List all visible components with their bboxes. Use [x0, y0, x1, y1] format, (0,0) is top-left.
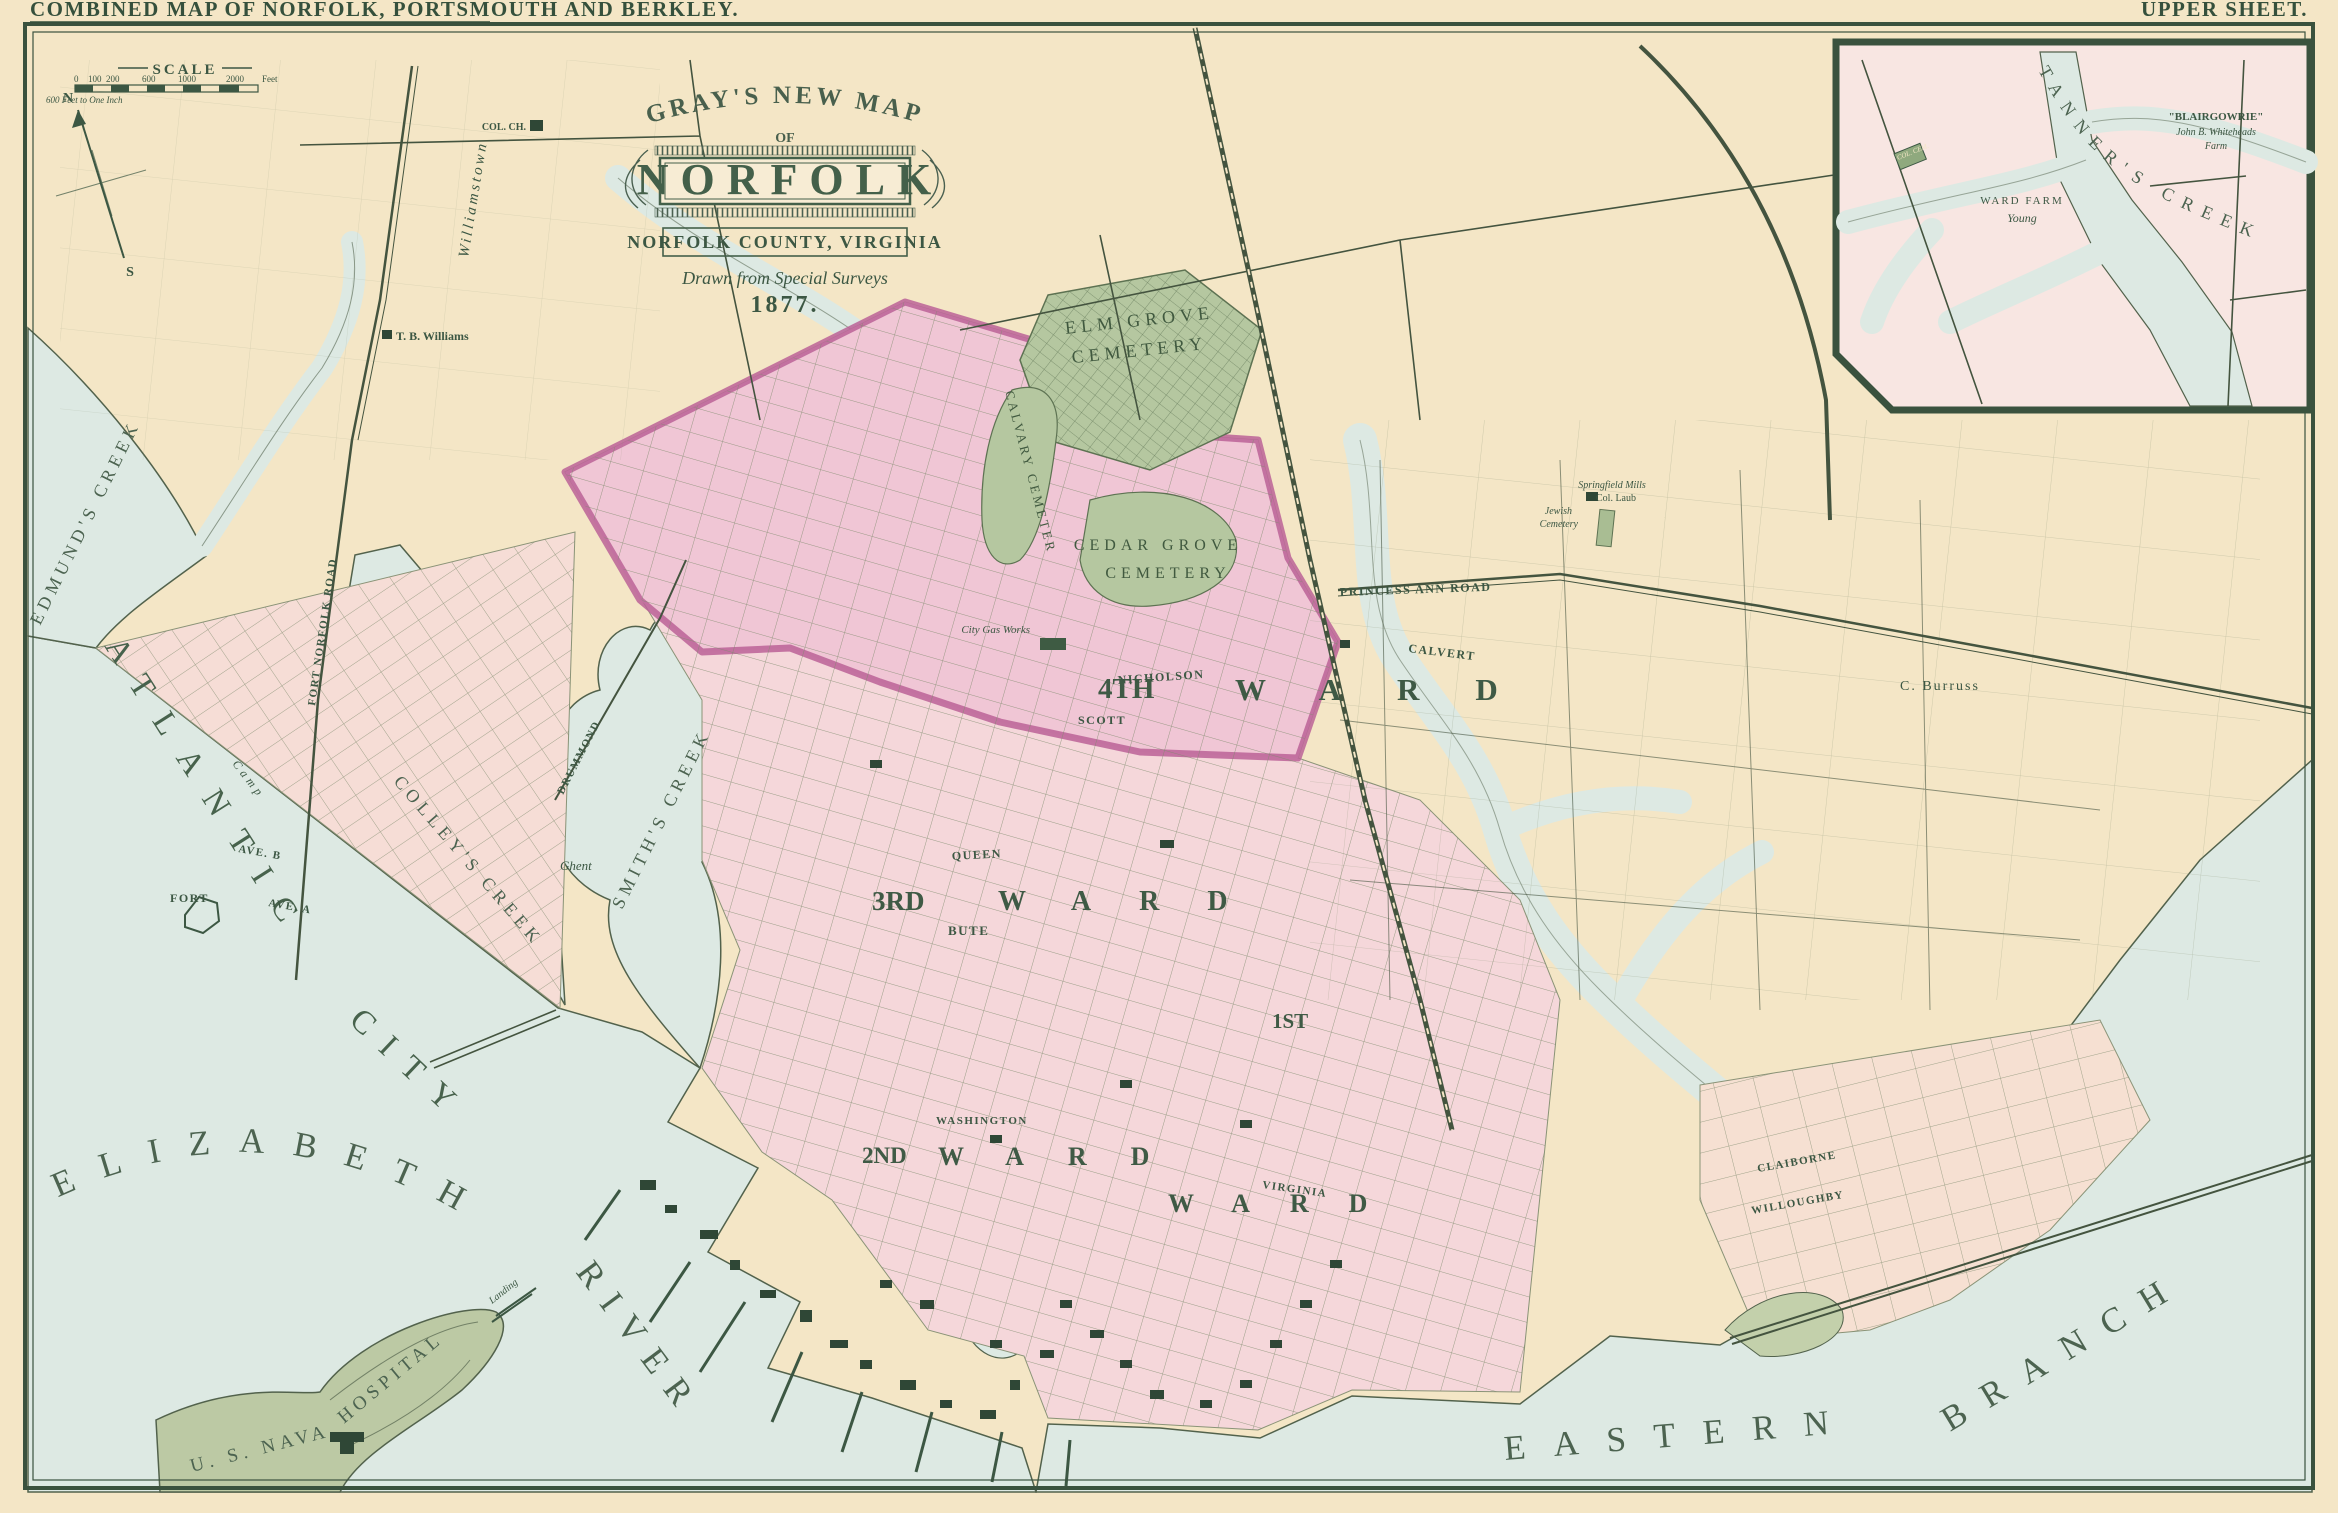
- title-drawn: Drawn from Special Surveys: [681, 268, 888, 288]
- ward3-num: 3RD: [872, 886, 925, 916]
- title-bar-top: [655, 146, 915, 155]
- ward3-label: WARD: [998, 886, 1276, 917]
- ward4-label: WARD: [1235, 672, 1554, 707]
- washington-label: WASHINGTON: [936, 1115, 1028, 1127]
- map-canvas: ELIZABETH RIVER EASTERN BRANCH EDMUND'S …: [0, 0, 2338, 1513]
- bute-label: BUTE: [948, 923, 989, 938]
- title-city: NORFOLK: [637, 155, 943, 204]
- scale-tick-0: 0: [74, 74, 79, 84]
- inset-farm: Farm: [2204, 141, 2227, 152]
- compass-south: S: [126, 265, 134, 280]
- header-right: UPPER SHEET.: [2141, 0, 2308, 21]
- cedar-grove-label2: CEMETERY: [1105, 565, 1230, 582]
- title-bar-bottom: [655, 208, 915, 217]
- springfield-label: Springfield Mills: [1578, 480, 1646, 491]
- burruss-label: C. Burruss: [1900, 679, 1980, 694]
- ward2-num: 2ND: [862, 1143, 907, 1168]
- scale-unit: Feet: [262, 74, 278, 84]
- jewish-cem-label: Jewish: [1545, 506, 1572, 517]
- scale-tick-100: 100: [88, 74, 102, 84]
- ward1-num: 1ST: [1272, 1009, 1308, 1033]
- scale-note: 600 Feet to One Inch: [46, 95, 123, 105]
- fort-label: FORT: [170, 891, 209, 905]
- inset-blairgowrie: "BLAIRGOWRIE": [2169, 111, 2264, 123]
- title-county: NORFOLK COUNTY, VIRGINIA: [627, 232, 943, 252]
- jewish-cemetery-shape: [1596, 509, 1615, 546]
- ward2-label: WARD: [938, 1142, 1193, 1171]
- inset-young: Young: [2007, 211, 2037, 225]
- norfolk-map-svg: ELIZABETH RIVER EASTERN BRANCH EDMUND'S …: [0, 0, 2338, 1513]
- header-left: COMBINED MAP OF NORFOLK, PORTSMOUTH AND …: [30, 0, 739, 21]
- col-laub-label: Col. Laub: [1596, 493, 1636, 504]
- jewish-cem-label2: Cemetery: [1540, 519, 1579, 530]
- inset-owner: John B. Whiteheads: [2176, 127, 2256, 138]
- title-of: OF: [775, 131, 794, 146]
- col-ch-label: COL. CH.: [482, 122, 527, 133]
- inset-panel: COL. CEM. TANNER'S CREEK "BLAIRGOWRIE" J…: [1836, 42, 2310, 410]
- queen-label: QUEEN: [951, 846, 1002, 863]
- scale-tick-200: 200: [106, 74, 120, 84]
- cedar-grove-label: CEDAR GROVE: [1074, 537, 1242, 554]
- title-year: 1877.: [751, 292, 820, 318]
- east-fields-grid: [1310, 420, 2260, 1000]
- scott-label: SCOTT: [1078, 713, 1126, 727]
- scale-tick-1000: 1000: [178, 74, 197, 84]
- scale-tick-2000: 2000: [226, 74, 245, 84]
- inset-ward-farm: WARD FARM: [1980, 195, 2064, 207]
- gas-works-building: [1040, 638, 1066, 650]
- ghent-label: Ghent: [560, 858, 592, 873]
- gas-works-label: City Gas Works: [961, 624, 1030, 636]
- compass-north: N: [63, 91, 73, 106]
- tb-williams-label: T. B. Williams: [396, 329, 469, 343]
- scale-tick-600: 600: [142, 74, 156, 84]
